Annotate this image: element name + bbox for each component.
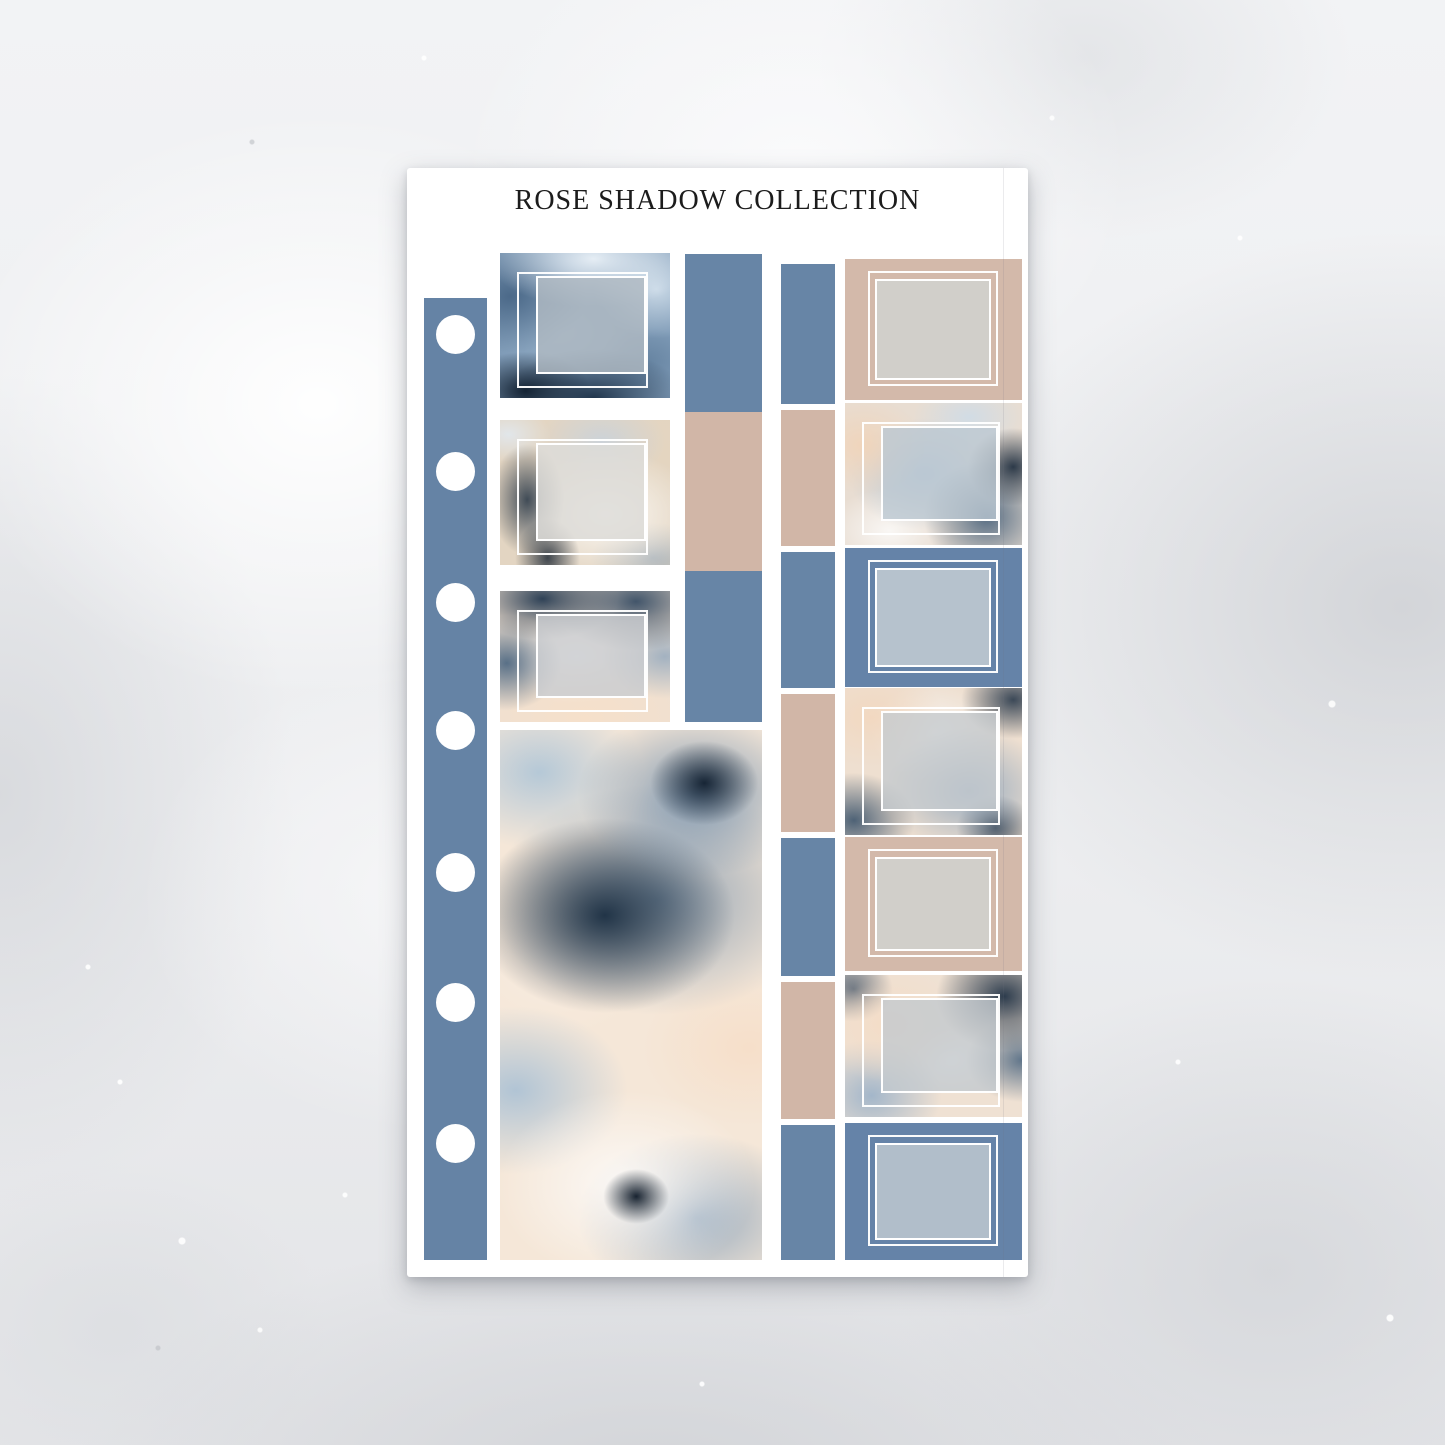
left-box-column — [500, 253, 670, 722]
washi-strip-sticker — [781, 838, 835, 976]
punch-hole — [436, 452, 475, 491]
punch-hole — [436, 983, 475, 1022]
washi-strip-sticker — [781, 1125, 835, 1260]
accent-strip-sticker — [685, 412, 762, 571]
accent-strip-column — [685, 254, 762, 722]
framed-photo-box-sticker — [500, 253, 670, 398]
washi-strip-column — [781, 264, 835, 1260]
framed-photo-box-sticker — [500, 591, 670, 722]
framed-photo-box-sticker — [845, 259, 1022, 400]
punch-hole — [436, 1124, 475, 1163]
washi-strip-sticker — [781, 552, 835, 688]
punch-hole — [436, 315, 475, 354]
full-box-floral-sticker — [500, 730, 762, 1260]
framed-photo-box-sticker — [845, 837, 1022, 971]
framed-photo-box-sticker — [845, 688, 1022, 835]
framed-photo-box-sticker — [500, 420, 670, 565]
framed-photo-box-sticker — [845, 548, 1022, 687]
right-box-column — [845, 259, 1022, 1260]
washi-strip-sticker — [781, 982, 835, 1119]
washi-strip-sticker — [781, 694, 835, 832]
accent-strip-sticker — [685, 571, 762, 722]
framed-photo-box-sticker — [845, 1123, 1022, 1260]
punch-hole — [436, 583, 475, 622]
sticker-sheet: ROSE SHADOW COLLECTION — [407, 168, 1028, 1277]
collection-title: ROSE SHADOW COLLECTION — [407, 185, 1028, 217]
framed-photo-box-sticker — [845, 975, 1022, 1117]
sheet-crease-line — [1003, 168, 1004, 1277]
washi-strip-sticker — [781, 410, 835, 546]
punch-hole — [436, 711, 475, 750]
punch-hole — [436, 853, 475, 892]
page-background: ROSE SHADOW COLLECTION — [0, 0, 1445, 1445]
framed-photo-box-sticker — [845, 403, 1022, 545]
washi-strip-sticker — [781, 264, 835, 404]
binder-spine-sticker — [424, 298, 487, 1260]
accent-strip-sticker — [685, 254, 762, 412]
